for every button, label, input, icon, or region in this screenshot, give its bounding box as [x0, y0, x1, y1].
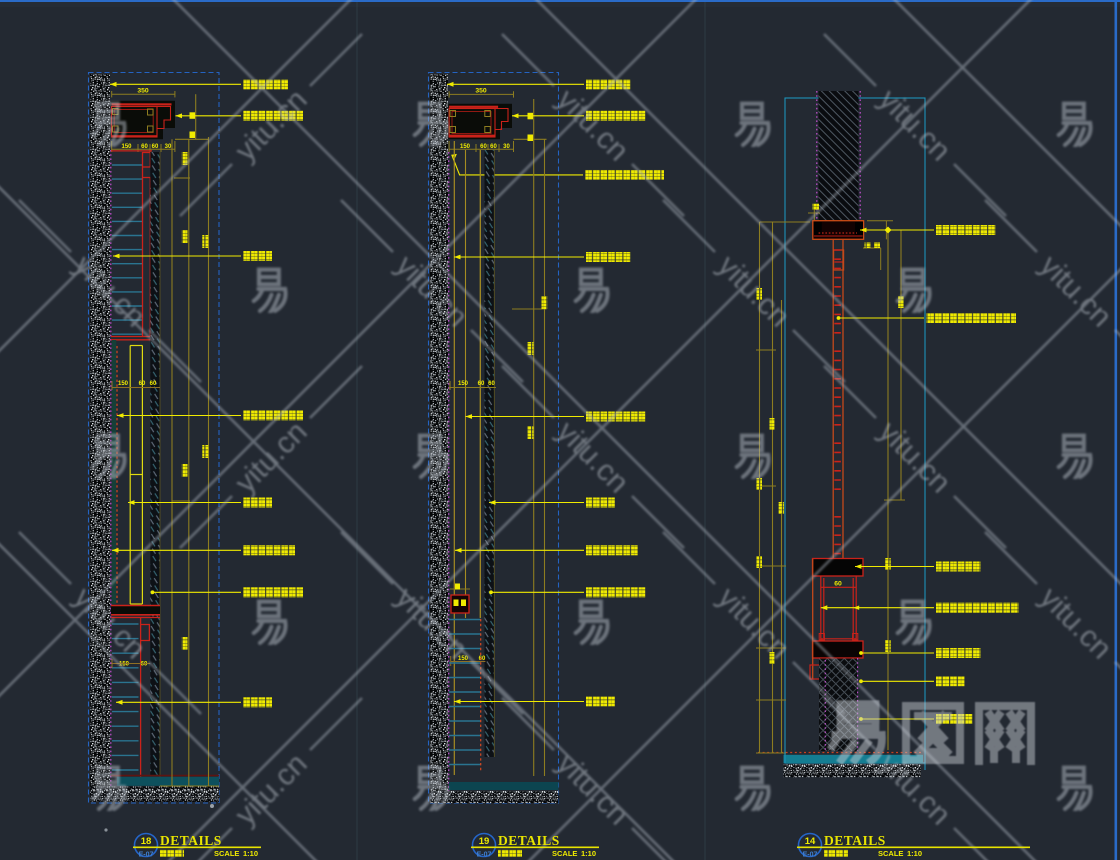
svg-text:1:10: 1:10: [581, 849, 596, 858]
svg-text:150: 150: [458, 381, 469, 387]
svg-text:SCALE: SCALE: [878, 849, 903, 858]
svg-text:14: 14: [805, 836, 816, 847]
svg-text:350: 350: [137, 87, 149, 94]
svg-text:1:10: 1:10: [243, 849, 258, 858]
svg-text:60: 60: [488, 381, 495, 387]
svg-text:60: 60: [150, 381, 157, 387]
svg-text:60: 60: [490, 144, 497, 150]
svg-text:30: 30: [165, 144, 172, 150]
svg-text:30: 30: [503, 144, 510, 150]
svg-text:60: 60: [480, 144, 487, 150]
svg-text:150: 150: [118, 381, 129, 387]
svg-text:60: 60: [152, 144, 159, 150]
svg-text:E-07: E-07: [803, 852, 818, 859]
svg-text:60: 60: [141, 144, 148, 150]
svg-text:1:10: 1:10: [907, 849, 922, 858]
svg-text:DETAILS: DETAILS: [498, 833, 560, 848]
svg-text:E-07: E-07: [139, 852, 154, 859]
svg-text:E-07: E-07: [477, 852, 492, 859]
svg-text:60: 60: [141, 662, 148, 668]
svg-text:60: 60: [479, 656, 486, 662]
svg-text:150: 150: [460, 144, 471, 150]
svg-text:DETAILS: DETAILS: [824, 833, 886, 848]
svg-text:SCALE: SCALE: [214, 849, 239, 858]
svg-text:60: 60: [478, 381, 485, 387]
svg-text:350: 350: [475, 88, 487, 95]
svg-text:19: 19: [479, 836, 490, 847]
svg-text:DETAILS: DETAILS: [160, 833, 222, 848]
svg-text:18: 18: [141, 836, 152, 847]
svg-text:60: 60: [139, 381, 146, 387]
svg-text:SCALE: SCALE: [552, 849, 577, 858]
svg-text:150: 150: [121, 144, 132, 150]
svg-text:60: 60: [834, 581, 842, 588]
